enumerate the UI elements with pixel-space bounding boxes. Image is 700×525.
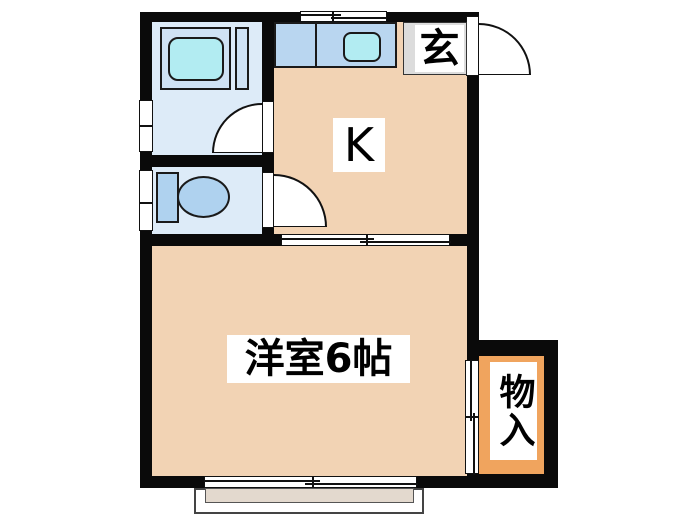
bath-shelf: [235, 27, 249, 90]
balcony-sliding-door: [204, 476, 417, 488]
window-pane-line: [331, 17, 386, 19]
window-mullion-line: [140, 202, 152, 204]
floorplan-canvas: 玄 K 洋室6帖 物入: [0, 0, 700, 525]
toilet-door-opening: [262, 172, 274, 228]
closet-sliding-door: [465, 360, 479, 474]
bathroom-door-opening: [262, 101, 274, 153]
slider-panel-line: [205, 480, 320, 482]
balcony-deck: [205, 488, 414, 503]
toilet-tank: [156, 172, 179, 223]
kitchen-sliding-door: [281, 234, 450, 246]
bathroom-window: [139, 100, 153, 152]
wall-bath-toilet-divider: [140, 155, 274, 167]
western-room-label: 洋室6帖: [227, 335, 410, 383]
kitchen-label: K: [333, 118, 385, 172]
closet-label: 物入: [490, 362, 537, 460]
slider-panel-line: [360, 241, 451, 243]
wall-left: [140, 12, 152, 488]
slider-panel-line: [470, 361, 472, 421]
window-pane-line: [301, 14, 341, 16]
entrance-door-opening: [466, 16, 479, 76]
toilet-window: [139, 170, 153, 231]
wall-closet-bottom: [467, 474, 558, 488]
kitchen-counter-divider: [315, 22, 317, 68]
slider-overlap-tick: [312, 477, 314, 487]
slider-panel-line: [282, 238, 374, 240]
window-overlap-tick: [332, 12, 334, 21]
slider-overlap-tick: [366, 235, 368, 245]
window-mullion-line: [140, 125, 152, 127]
slider-overlap-tick: [466, 416, 478, 418]
slider-panel-line: [305, 483, 418, 485]
kitchen-window: [300, 11, 387, 22]
wall-closet-right: [544, 340, 558, 488]
entrance-label: 玄: [415, 25, 464, 72]
toilet-bowl: [177, 176, 230, 218]
slider-panel-line: [473, 413, 475, 475]
bathtub-basin: [168, 37, 224, 81]
kitchen-sink: [343, 32, 381, 62]
entrance-door-swing: [479, 23, 531, 75]
